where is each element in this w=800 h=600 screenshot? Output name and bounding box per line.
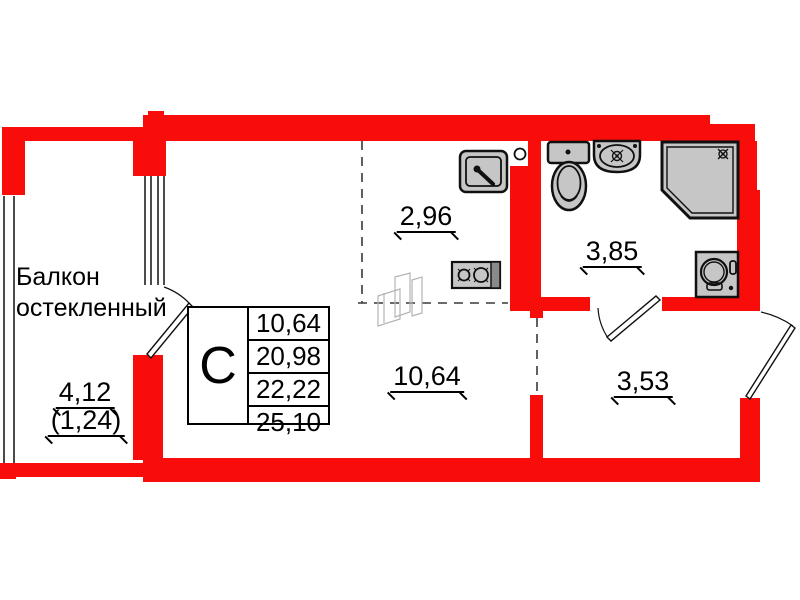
table-row: 20,98 [249, 339, 328, 372]
floor-plan: Балкон остекленный 4,12 (1,24) 2,96 3,85… [0, 0, 800, 600]
apartment-info-table: С 10,64 20,98 22,22 25,10 [187, 306, 330, 425]
kitchen-area-label: 2,96 [397, 203, 456, 233]
balcony-label: Балкон остекленный [16, 262, 167, 324]
bathroom-area-label: 3,85 [583, 238, 642, 268]
washbasin-icon [594, 141, 640, 172]
stove-icon [452, 262, 500, 288]
table-row: 22,22 [249, 372, 328, 405]
table-row: 25,10 [249, 405, 328, 438]
toilet-icon [548, 142, 589, 210]
balcony-label-line2: остекленный [16, 293, 167, 324]
bathroom-door-swing [598, 296, 660, 341]
entrance-door-swing [746, 312, 795, 399]
partition-dashed-lines [358, 141, 537, 395]
washing-machine-icon [696, 252, 738, 297]
apartment-type-letter: С [189, 308, 249, 423]
hall-area-label: 3,53 [614, 368, 673, 398]
kitchen-sink-icon [460, 151, 507, 192]
vent-circle-icon [515, 149, 526, 160]
balcony-area-reduced-label: (1,24) [48, 407, 125, 437]
balcony-glazing-left [4, 196, 14, 463]
table-row: 10,64 [249, 308, 328, 339]
shower-icon [662, 142, 738, 218]
balcony-label-line1: Балкон [16, 262, 167, 293]
living-area-label: 10,64 [390, 363, 464, 393]
furniture-sketch [378, 273, 422, 326]
